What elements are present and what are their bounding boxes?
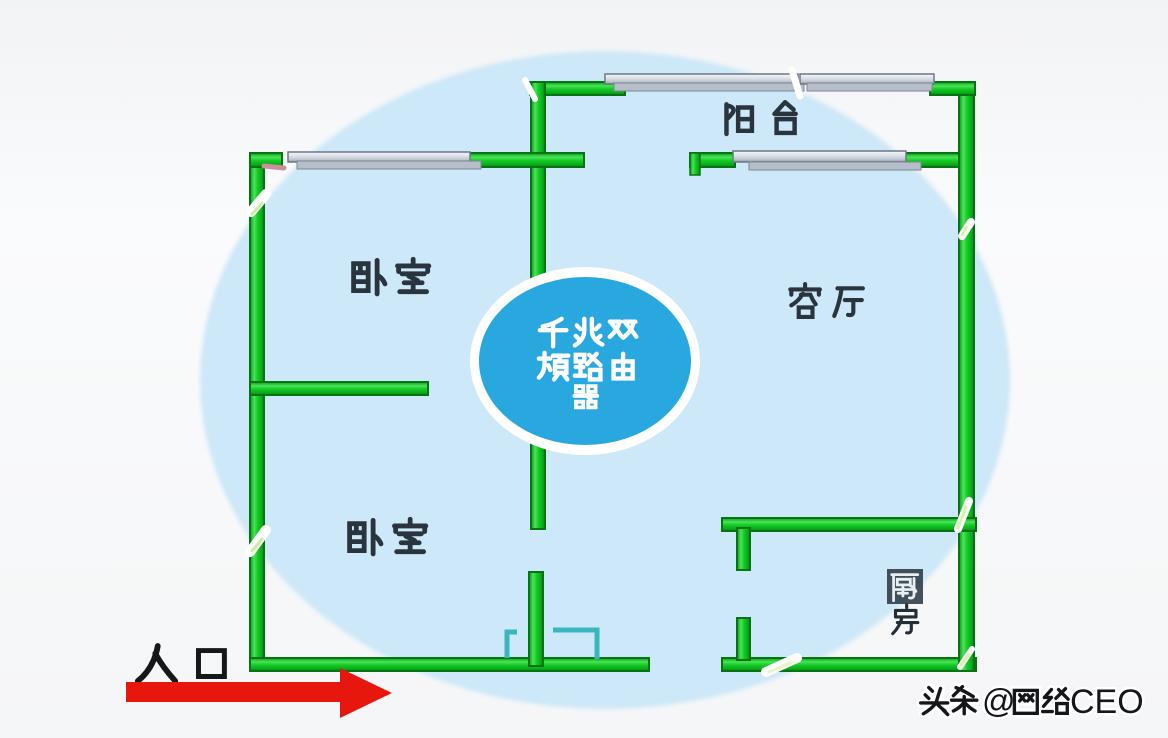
svg-text:CEO: CEO — [1070, 683, 1144, 721]
svg-text:@: @ — [982, 682, 1016, 719]
